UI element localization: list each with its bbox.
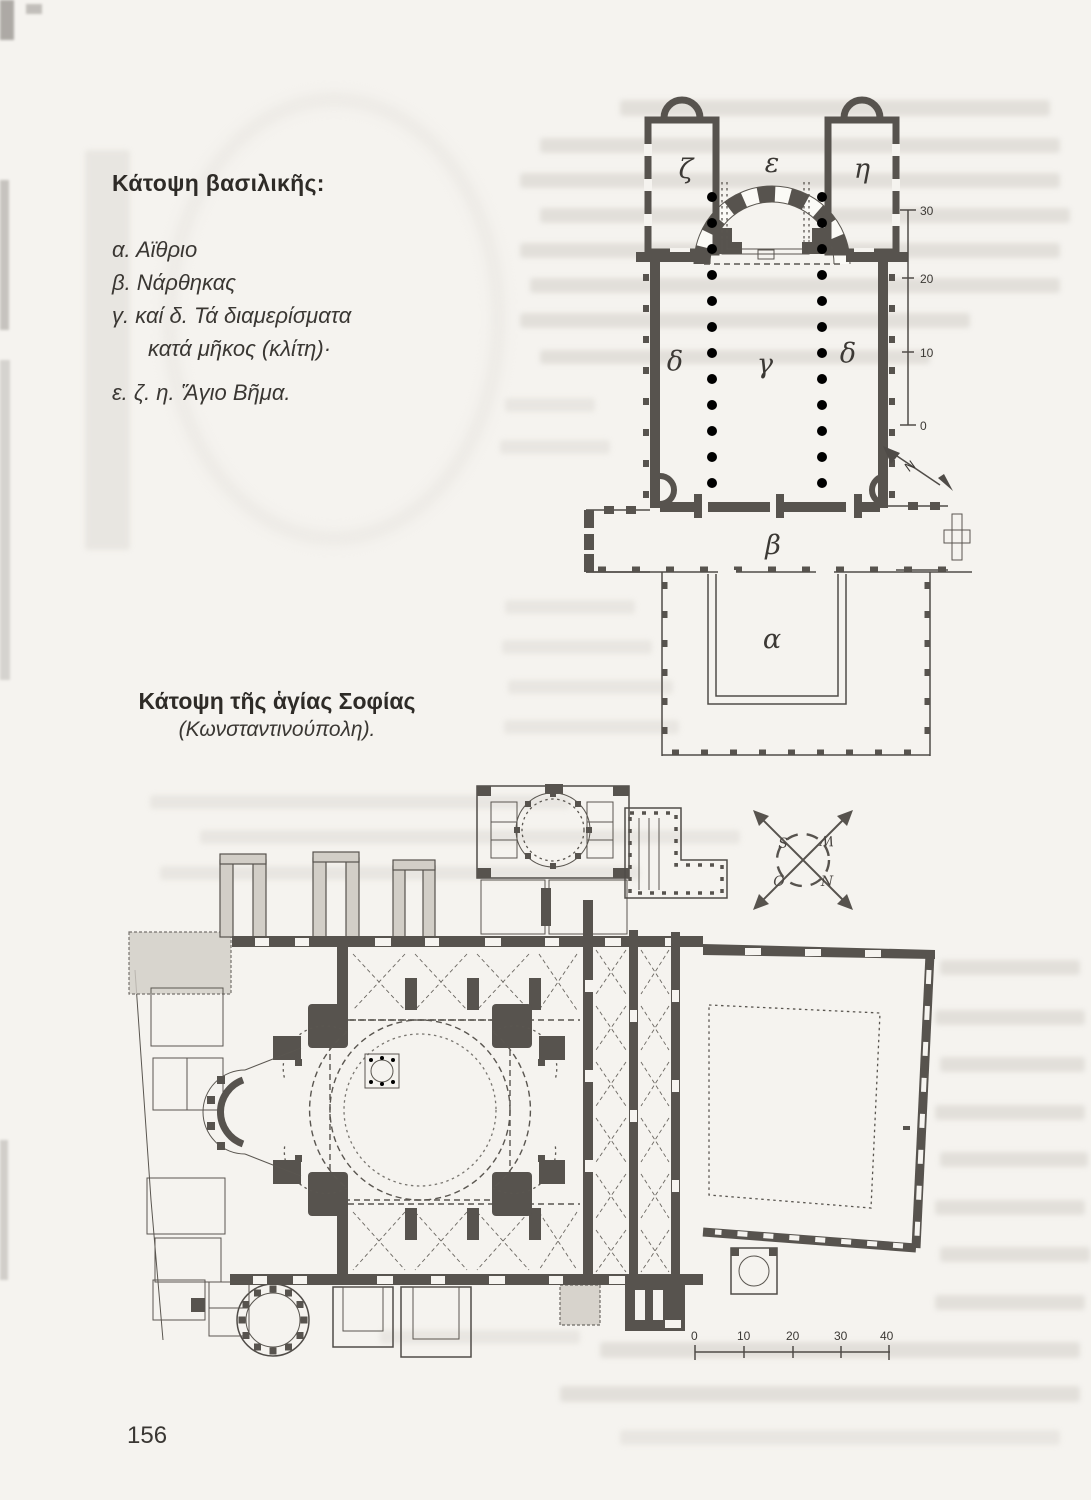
wall-gap <box>644 214 652 226</box>
legend-line-atrium: α. Αϊθριο <box>112 233 472 266</box>
narthex-right-arm <box>888 502 970 570</box>
bleed-through-text <box>935 1010 1085 1025</box>
scan-artifact <box>0 0 14 40</box>
south-aisle <box>348 1204 580 1270</box>
east-semidome <box>493 1026 565 1194</box>
legend-line-bema: ε. ζ. η. Ἅγιο Βῆμα. <box>112 376 472 409</box>
bleed-through-text <box>560 1386 1080 1402</box>
nave-wall-left <box>650 262 660 508</box>
nave-bottom-wall <box>660 494 880 518</box>
hagia-sophia-caption-subtitle: (Κωνσταντινούπολη). <box>112 718 442 742</box>
domed-annex <box>477 784 629 878</box>
narthex-left-arm <box>584 506 650 572</box>
right-chamber-apse <box>844 100 880 118</box>
label-sanctuary: ε <box>765 148 780 179</box>
annex-room <box>151 988 223 1046</box>
bleed-through-text <box>940 960 1080 975</box>
label-chamber-right: η <box>854 154 870 185</box>
label-nave: γ <box>757 349 774 380</box>
west-semidome-apse <box>203 1026 347 1194</box>
wall-gap <box>892 214 900 226</box>
wall-gap <box>644 179 652 191</box>
precinct-wall <box>135 970 163 1340</box>
bleed-through-text <box>935 1200 1085 1215</box>
label-chamber-left: ζ <box>679 154 695 185</box>
bleed-through-text <box>620 1430 1060 1445</box>
bleed-through-text <box>935 1105 1085 1120</box>
stray-mark <box>903 1126 910 1130</box>
bleed-through-text <box>940 1152 1088 1167</box>
scan-artifact <box>0 180 9 330</box>
bleed-through-text <box>940 1057 1085 1072</box>
bleed-through-text <box>940 1247 1090 1262</box>
inner-narthex <box>583 900 626 1278</box>
label-narthex: β <box>764 530 781 561</box>
hagia-sophia-scale-bar: 0 10 20 30 40 <box>691 1329 894 1360</box>
legend-line-aisles: γ. καί δ. Τά διαμερίσματα <box>112 299 472 332</box>
omphalion <box>365 1054 399 1088</box>
north-arrow: N <box>883 446 953 491</box>
book-page: Κάτοψη βασιλικῆς: α. Αϊθριο β. Νάρθηκας … <box>0 0 1091 1500</box>
vestibule-pier <box>541 888 551 926</box>
compass-letter-sw: O <box>773 874 785 890</box>
scale-tick-label: 30 <box>920 204 934 218</box>
ramp-building <box>625 808 727 898</box>
transverse-wall <box>636 252 698 262</box>
legend-line-narthex: β. Νάρθηκας <box>112 266 472 299</box>
scale-tick-label: 10 <box>737 1329 751 1343</box>
basilica-legend-title: Κάτοψη βασιλικῆς: <box>112 170 472 197</box>
annex-room <box>155 1238 221 1282</box>
basilica-scale-bar: 30 20 10 0 <box>900 204 934 433</box>
buttress-block <box>129 932 231 994</box>
bleed-through-text <box>935 1295 1085 1310</box>
scale-tick-label: 20 <box>920 272 934 286</box>
nave-wall-right <box>878 262 888 508</box>
north-buttresses <box>220 852 435 937</box>
scale-tick-label: 0 <box>691 1329 698 1343</box>
scale-tick-label: 0 <box>920 419 927 433</box>
north-label: N <box>902 457 918 475</box>
scan-artifact <box>26 4 42 14</box>
isolated-pier <box>191 1298 205 1312</box>
legend-line-aisles-cont: κατά μῆκος (κλίτη)· <box>112 332 472 365</box>
label-aisle-left: δ <box>667 346 683 377</box>
sanctuary-pier <box>730 242 742 254</box>
left-chamber-apse <box>664 100 700 118</box>
compass-letter-nw: S <box>778 836 788 852</box>
hagia-sophia-floor-plan: S W O N 0 10 20 30 40 <box>125 780 937 1368</box>
compass-letter-ne: W <box>818 832 835 849</box>
scale-tick-label: 40 <box>880 1329 894 1343</box>
south-annexes <box>153 1280 685 1357</box>
wall-gap <box>892 144 900 156</box>
atrium-walls <box>586 569 972 756</box>
exonarthex <box>629 930 680 1278</box>
transverse-wall <box>846 252 908 262</box>
wall-gap <box>892 179 900 191</box>
side-niche-left <box>660 476 674 504</box>
north-aisle <box>348 954 580 1020</box>
compass-letter-se: N <box>820 874 834 890</box>
wall-gap <box>644 144 652 156</box>
label-atrium: α <box>763 624 781 655</box>
basilica-floor-plan: 30 20 10 0 N ζ ε η δ γ δ β α <box>578 82 980 788</box>
scan-artifact <box>0 1140 8 1280</box>
basilica-legend: Κάτοψη βασιλικῆς: α. Αϊθριο β. Νάρθηκας … <box>112 170 472 409</box>
vestibule <box>481 880 545 934</box>
atrium-court <box>703 944 935 1294</box>
scan-artifact <box>0 360 10 680</box>
hagia-sophia-caption: Κάτοψη τῆς ἁγίας Σοφίας (Κωνσταντινούπολ… <box>112 688 442 742</box>
sanctuary-pier <box>716 228 732 254</box>
compass-rose: S W O N <box>753 810 853 910</box>
scale-tick-label: 20 <box>786 1329 800 1343</box>
scale-tick-label: 10 <box>920 346 934 360</box>
hagia-sophia-caption-title: Κάτοψη τῆς ἁγίας Σοφίας <box>112 688 442 715</box>
round-building <box>237 1284 309 1356</box>
scale-tick-label: 30 <box>834 1329 848 1343</box>
page-number: 156 <box>127 1422 167 1450</box>
label-aisle-right: δ <box>840 338 856 369</box>
annex-room <box>147 1178 225 1234</box>
